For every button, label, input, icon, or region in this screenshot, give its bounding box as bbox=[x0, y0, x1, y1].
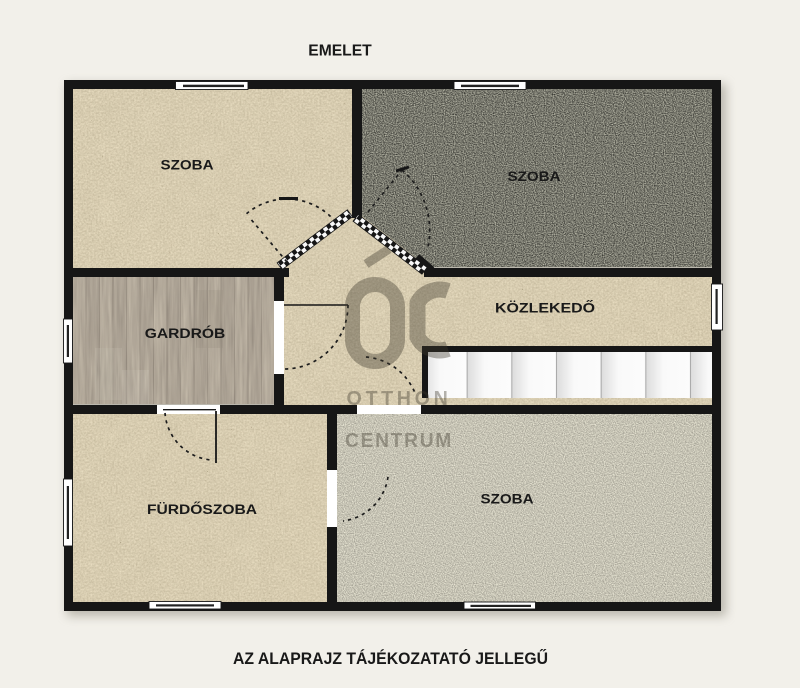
svg-text:EMELET: EMELET bbox=[308, 43, 372, 60]
svg-text:KÖZLEKEDŐ: KÖZLEKEDŐ bbox=[495, 299, 595, 317]
svg-text:SZOBA: SZOBA bbox=[481, 492, 534, 508]
svg-text:AZ ALAPRAJZ TÁJÉKOZATATÓ JELLE: AZ ALAPRAJZ TÁJÉKOZATATÓ JELLEGŰ bbox=[233, 649, 548, 668]
svg-text:CENTRUM: CENTRUM bbox=[345, 430, 453, 452]
svg-text:GARDRÓB: GARDRÓB bbox=[145, 324, 226, 342]
svg-text:SZOBA: SZOBA bbox=[508, 169, 561, 185]
svg-text:OTTHON: OTTHON bbox=[347, 388, 452, 410]
svg-text:SZOBA: SZOBA bbox=[161, 158, 214, 174]
svg-text:FÜRDŐSZOBA: FÜRDŐSZOBA bbox=[147, 500, 257, 518]
